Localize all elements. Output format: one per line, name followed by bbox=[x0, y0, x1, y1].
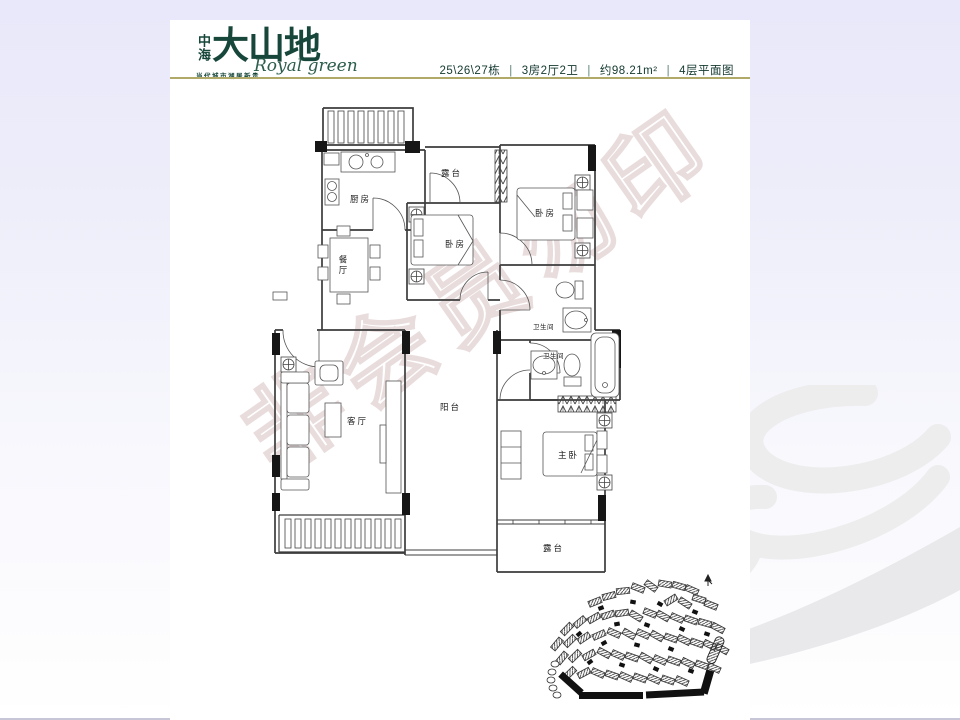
room-label-kitchen: 厨房 bbox=[350, 194, 371, 204]
room-label-bedroom1: 卧房 bbox=[445, 239, 466, 249]
vent-shaft-hatch bbox=[495, 150, 507, 202]
tv-cabinet-icon bbox=[380, 381, 401, 493]
floorplan: 厨房 餐厅 露台 卧房 卧房 卫生间 卫生间 客厅 阳台 主卧 露台 bbox=[255, 95, 650, 575]
coffee-table-icon bbox=[325, 403, 341, 437]
toilet-icon bbox=[564, 354, 581, 386]
header: 中海 大山地 Royal green 当代城市湖居新贵 25\26\27栋|3房… bbox=[170, 20, 750, 78]
armchair-icon bbox=[315, 361, 343, 385]
entry-step bbox=[273, 292, 287, 300]
page-card: 非会员勿印 中海 大山地 Royal green 当代城市湖居新贵 25\26\… bbox=[170, 20, 750, 720]
info-separator: | bbox=[587, 65, 591, 77]
room-label-balcony: 阳台 bbox=[440, 402, 461, 412]
info-separator: | bbox=[509, 65, 513, 77]
room-label-bath1: 卫生间 bbox=[533, 322, 554, 331]
room-label-living: 客厅 bbox=[347, 416, 368, 426]
dining-table-icon bbox=[318, 226, 380, 304]
header-divider bbox=[170, 77, 750, 79]
logo-script: Royal green bbox=[254, 56, 358, 76]
room-label-terrace-bottom: 露台 bbox=[543, 543, 564, 553]
logo-prefix: 中海 bbox=[196, 34, 210, 62]
north-arrow-icon bbox=[705, 575, 712, 586]
info-separator: | bbox=[667, 65, 671, 77]
wardrobe-icon bbox=[501, 431, 521, 479]
kitchen-sink-icon bbox=[341, 152, 395, 172]
room-label-bedroom2: 卧房 bbox=[535, 208, 556, 218]
room-label-bath2: 卫生间 bbox=[543, 351, 564, 360]
basin-icon bbox=[563, 308, 591, 332]
info-area: 约98.21m² bbox=[600, 65, 658, 77]
info-floor: 4层平面图 bbox=[679, 65, 734, 77]
siteplan-edge-units bbox=[547, 661, 561, 698]
screen: 非会员勿印 中海 大山地 Royal green 当代城市湖居新贵 25\26\… bbox=[0, 0, 960, 720]
info-layout: 3房2厅2卫 bbox=[522, 65, 579, 77]
louvre-balcony-top bbox=[328, 111, 404, 143]
brand-logo: 中海 大山地 Royal green 当代城市湖居新贵 bbox=[194, 26, 414, 78]
siteplan bbox=[543, 572, 745, 717]
bathtub-icon bbox=[591, 333, 619, 397]
info-building: 25\26\27栋 bbox=[439, 65, 500, 77]
header-info: 25\26\27栋|3房2厅2卫|约98.21m²|4层平面图 bbox=[439, 62, 734, 78]
stove-icon bbox=[325, 179, 339, 205]
louvre-balcony-bottom bbox=[285, 519, 401, 548]
room-label-master: 主卧 bbox=[558, 450, 579, 460]
kitchen-counter-icon bbox=[324, 153, 339, 165]
room-label-dining: 餐厅 bbox=[338, 255, 348, 276]
sofa-icon bbox=[281, 372, 309, 490]
room-label-terrace-top: 露台 bbox=[441, 168, 462, 178]
closet-hatch bbox=[558, 396, 616, 412]
toilet-icon bbox=[556, 281, 583, 299]
